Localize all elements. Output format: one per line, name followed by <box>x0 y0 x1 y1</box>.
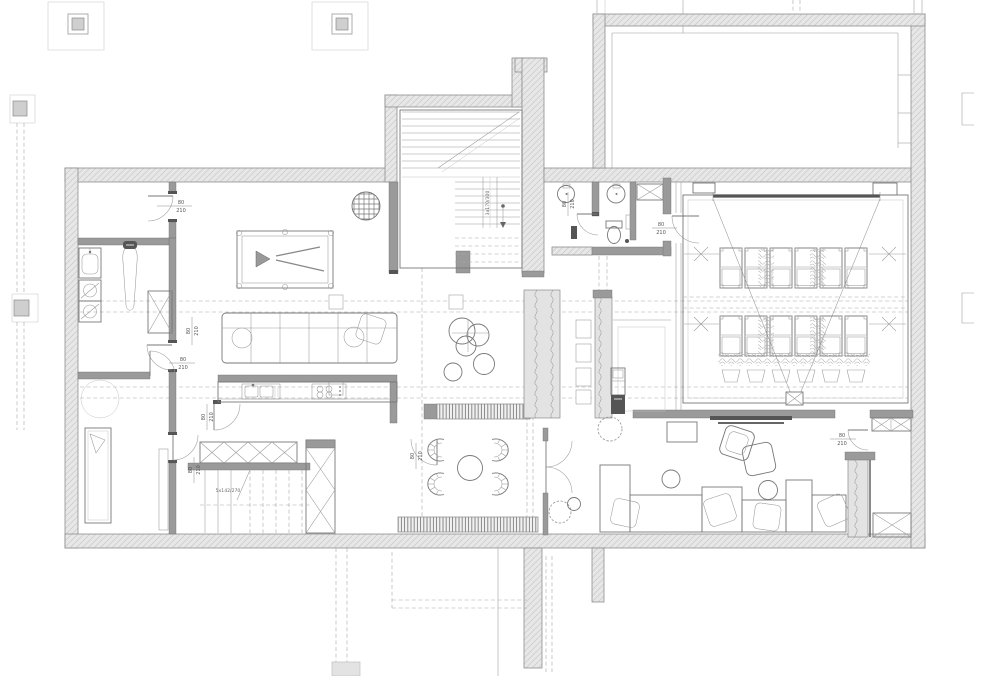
rug <box>718 354 870 366</box>
column-markers <box>10 2 368 430</box>
home-theater <box>683 183 908 405</box>
wc <box>552 182 671 296</box>
pouf <box>759 481 778 500</box>
svg-text:80: 80 <box>178 200 184 206</box>
projector <box>786 392 803 405</box>
plant <box>598 417 622 441</box>
closet-room <box>845 418 911 537</box>
dining-area <box>398 404 581 532</box>
svg-text:210: 210 <box>570 199 576 209</box>
kitchen-sink <box>242 384 280 399</box>
washing-machine <box>79 280 101 301</box>
chaise-bench <box>85 428 111 523</box>
svg-text:80: 80 <box>188 467 194 473</box>
exterior-paths <box>332 548 552 676</box>
dining-chair <box>492 439 508 461</box>
speaker-box <box>693 183 715 193</box>
svg-text:210: 210 <box>209 412 215 422</box>
washing-machine <box>79 301 101 322</box>
pool-table <box>236 229 333 289</box>
svg-text:80: 80 <box>186 328 192 334</box>
wardrobe-x <box>637 184 663 200</box>
rack-triangle <box>256 251 270 267</box>
dining-chair <box>428 439 444 461</box>
floor-drain-grid <box>352 192 380 220</box>
svg-text:80: 80 <box>180 357 186 363</box>
lower-staircase: 5x142/270 <box>188 440 335 533</box>
toilet <box>606 221 622 244</box>
storage-xbox <box>873 513 911 537</box>
cue-stick <box>276 260 324 271</box>
door-size-label: 80210 <box>157 200 192 214</box>
bar-room <box>611 320 671 414</box>
theater-corridor <box>663 178 699 410</box>
round-table <box>81 380 119 418</box>
pouf <box>568 498 581 511</box>
kitchen <box>218 382 397 402</box>
pouf <box>444 363 462 381</box>
floor-grille <box>437 404 530 419</box>
double-door <box>546 441 572 493</box>
door-size-label: 80210 <box>186 317 200 345</box>
speaker-box <box>873 183 897 195</box>
floor-cushions <box>718 424 777 477</box>
round-pillow <box>232 328 252 348</box>
svg-text:210: 210 <box>656 230 666 236</box>
tv <box>710 416 792 423</box>
stone-feature-walls <box>524 290 612 418</box>
svg-text:80: 80 <box>839 433 845 439</box>
cue-stick <box>276 247 320 256</box>
stair-note-lower: 5x142/270 <box>216 488 241 494</box>
door-size-label: 80210 <box>201 404 215 430</box>
door-labels: 80210 80210 80210 80210 80210 80210 8021… <box>157 192 856 483</box>
mini-fridge <box>611 395 625 414</box>
svg-text:80: 80 <box>410 453 416 459</box>
svg-text:210: 210 <box>176 208 186 214</box>
svg-text:210: 210 <box>178 365 188 371</box>
entry-room-door <box>148 196 173 221</box>
svg-text:210: 210 <box>196 465 202 475</box>
door-size-label: 80210 <box>169 357 195 371</box>
section-brackets <box>962 93 974 323</box>
sofa <box>222 313 397 363</box>
projection-screen <box>713 192 880 201</box>
low-bench <box>600 465 851 532</box>
floorplan-svg: 3x170/300 <box>0 0 1006 676</box>
svg-text:210: 210 <box>837 441 847 447</box>
laundry-room <box>79 241 172 333</box>
side-table <box>667 422 697 442</box>
billiard-room <box>236 192 380 290</box>
pouf <box>474 354 495 375</box>
storage-xband <box>200 442 297 463</box>
bidet-sprayer <box>571 226 577 239</box>
door-size-label: 80210 <box>830 433 856 447</box>
storage-room <box>81 380 168 530</box>
theater-seat-row <box>720 316 867 356</box>
theater-seat-row <box>720 248 867 288</box>
svg-text:210: 210 <box>194 326 200 336</box>
pouf <box>662 470 680 488</box>
svg-text:80: 80 <box>201 414 207 420</box>
dining-table <box>458 456 483 481</box>
dining-chair <box>492 473 508 495</box>
svg-text:80: 80 <box>658 222 664 228</box>
stair-note-main: 3x170/300 <box>485 191 491 216</box>
wall-panel <box>159 449 168 530</box>
round-pillow <box>344 327 364 347</box>
courtyard <box>612 33 911 168</box>
main-staircase: 3x170/300 <box>400 110 541 310</box>
svg-text:210: 210 <box>418 451 424 461</box>
wardrobe-x <box>872 418 911 431</box>
lobby-furniture <box>444 318 495 381</box>
svg-text:80: 80 <box>562 201 568 207</box>
ironing-board <box>123 241 137 310</box>
dining-chair <box>428 473 444 495</box>
storage-xcolumn <box>306 440 335 533</box>
floor-grille <box>398 517 538 532</box>
lounge <box>598 416 851 532</box>
floor-plan-canvas: 3x170/300 <box>0 0 1006 676</box>
